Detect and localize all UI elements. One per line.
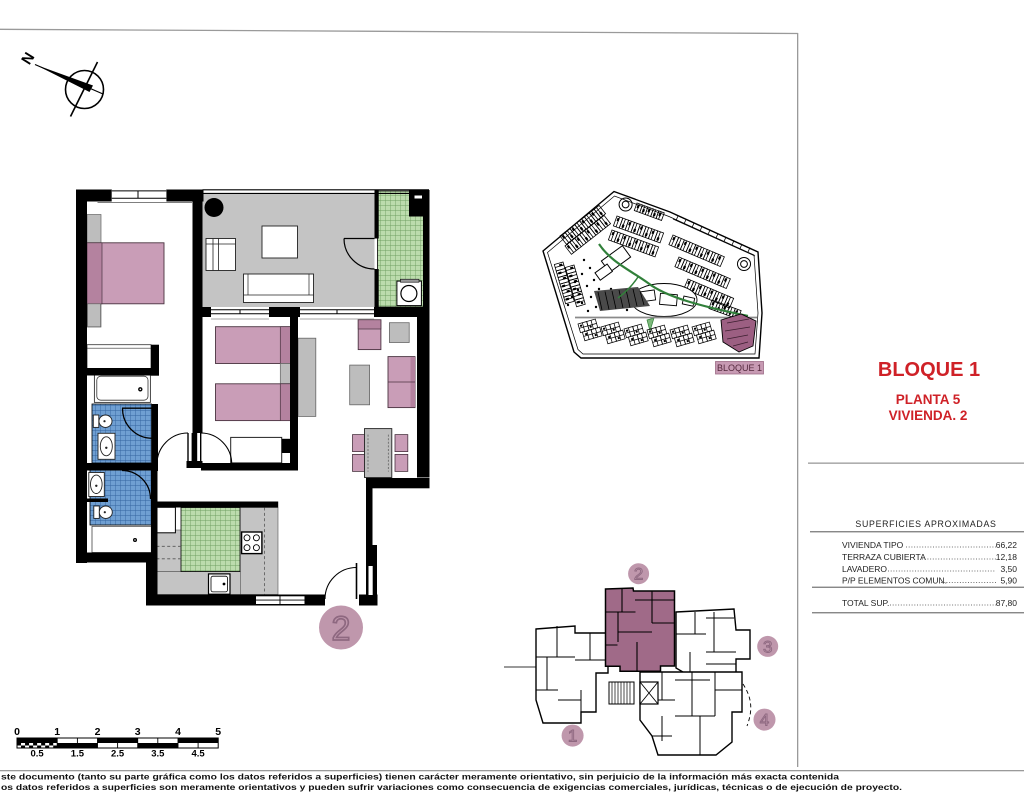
svg-text:4: 4	[175, 726, 181, 738]
svg-text:1.5: 1.5	[71, 749, 85, 760]
svg-text:1: 1	[568, 727, 577, 746]
svg-text:4: 4	[760, 711, 769, 730]
svg-text:P/P ELEMENTOS COMUN.: P/P ELEMENTOS COMUN.	[842, 576, 947, 586]
svg-text:VIVIENDA. 2: VIVIENDA. 2	[889, 408, 968, 423]
svg-text:0.5: 0.5	[30, 749, 44, 760]
svg-text:BLOQUE 1: BLOQUE 1	[878, 359, 980, 381]
svg-text:BLOQUE 1: BLOQUE 1	[717, 363, 762, 373]
svg-text:3,50: 3,50	[1000, 564, 1017, 574]
svg-text:12,18: 12,18	[996, 552, 1018, 562]
svg-text:5: 5	[215, 726, 221, 738]
svg-text:2: 2	[634, 565, 643, 584]
svg-text:2.5: 2.5	[111, 749, 125, 760]
svg-text:TOTAL SUP.: TOTAL SUP.	[842, 598, 889, 608]
svg-text:5,90: 5,90	[1000, 576, 1017, 586]
svg-text:87,80: 87,80	[996, 598, 1018, 608]
svg-text:ste documento (tanto su parte: ste documento (tanto su parte gráfica co…	[1, 771, 839, 781]
svg-text:0: 0	[14, 726, 20, 738]
svg-text:3: 3	[135, 726, 141, 738]
svg-text:1: 1	[54, 726, 60, 738]
svg-text:66,22: 66,22	[996, 540, 1018, 550]
svg-text:PLANTA 5: PLANTA 5	[896, 392, 961, 407]
svg-text:VIVIENDA TIPO: VIVIENDA TIPO	[842, 540, 904, 550]
svg-text:3: 3	[763, 637, 772, 656]
svg-text:2: 2	[332, 610, 351, 648]
svg-text:2: 2	[95, 726, 101, 738]
svg-text:3.5: 3.5	[151, 749, 165, 760]
svg-text:SUPERFICIES APROXIMADAS: SUPERFICIES APROXIMADAS	[855, 519, 996, 529]
svg-text:LAVADERO: LAVADERO	[842, 564, 887, 574]
svg-text:os datos referidos a superfici: os datos referidos a superficies son mer…	[1, 782, 902, 792]
svg-text:4.5: 4.5	[191, 749, 205, 760]
svg-text:TERRAZA CUBIERTA: TERRAZA CUBIERTA	[842, 552, 926, 562]
